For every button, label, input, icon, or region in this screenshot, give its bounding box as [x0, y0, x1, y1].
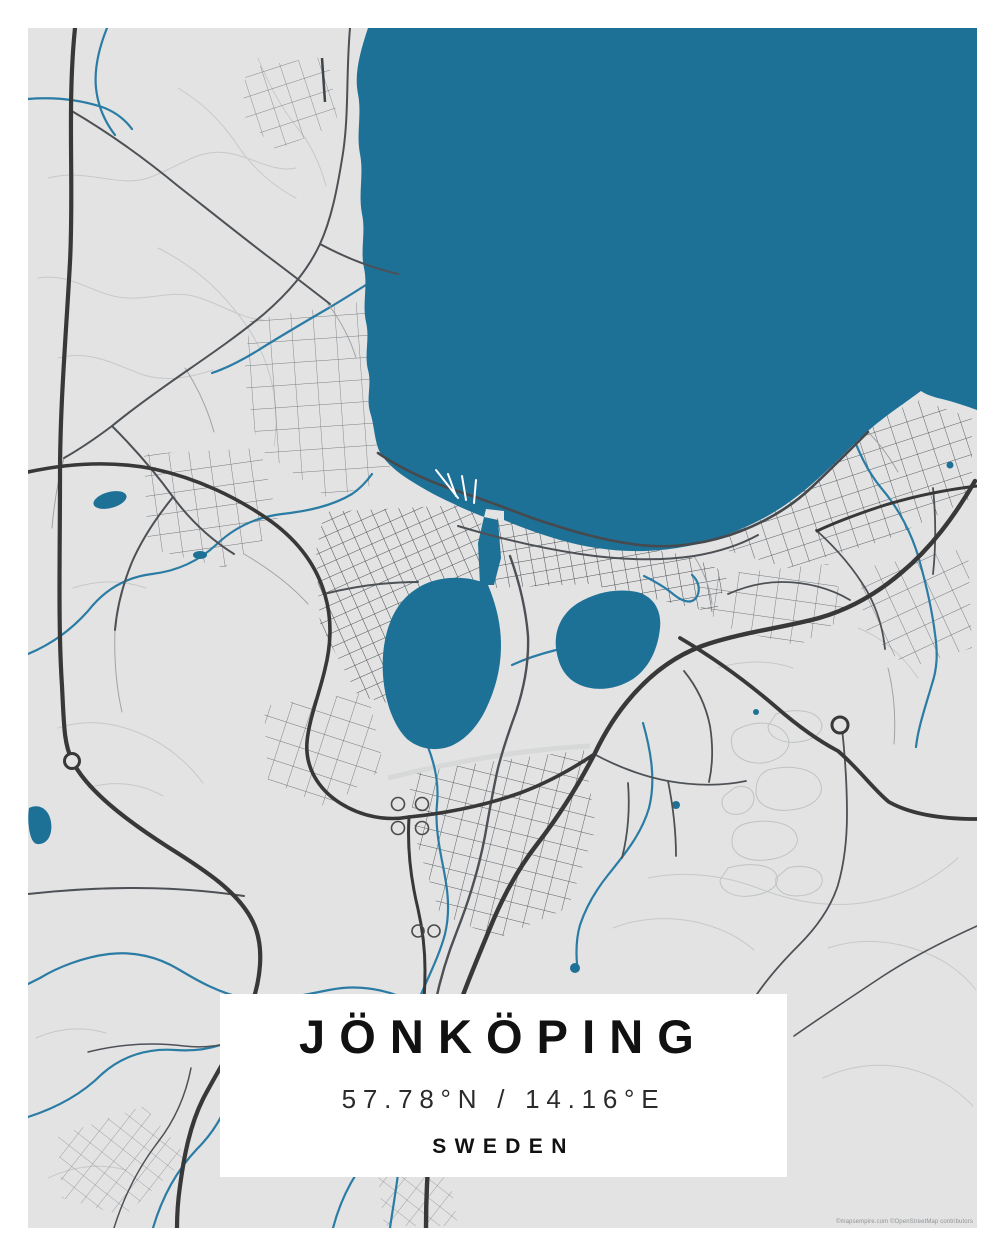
pond	[193, 551, 207, 559]
marina-basin	[474, 696, 483, 703]
country-label: SWEDEN	[432, 1136, 575, 1157]
pond	[947, 462, 954, 469]
map-attribution: ©mapsempire.com ©OpenStreetMap contribut…	[836, 1219, 973, 1225]
title-box: JÖNKÖPING 57.78°N / 14.16°E SWEDEN	[220, 994, 787, 1177]
pond	[753, 709, 759, 715]
pond	[438, 618, 445, 624]
map-poster: ©mapsempire.com ©OpenStreetMap contribut…	[0, 0, 1005, 1256]
roundabout	[832, 717, 848, 733]
pond	[570, 963, 580, 973]
roundabout	[65, 754, 80, 769]
city-title: JÖNKÖPING	[299, 1013, 708, 1060]
coordinates-label: 57.78°N / 14.16°E	[342, 1086, 666, 1112]
